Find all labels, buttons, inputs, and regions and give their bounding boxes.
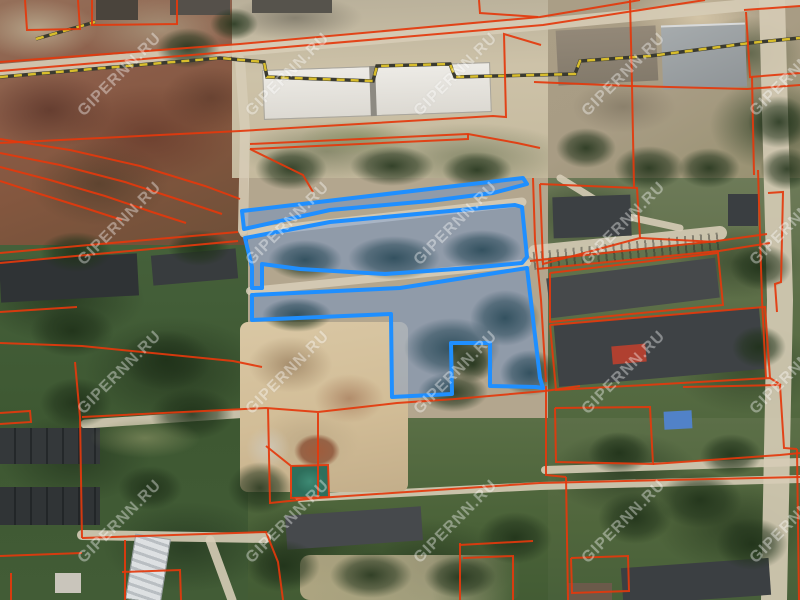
road — [0, 0, 800, 70]
building — [125, 534, 171, 600]
cadastral-parcel-line — [25, 0, 80, 30]
cadastral-parcel-line — [0, 307, 77, 312]
building — [661, 23, 747, 90]
gas-pipeline-underlay — [0, 38, 800, 81]
watermark-text: GIPERNN.RU — [747, 328, 800, 419]
watermark-text: GIPERNN.RU — [579, 328, 670, 419]
road — [545, 462, 800, 470]
cadastral-parcel-line — [683, 385, 797, 449]
watermark-text: GIPERNN.RU — [747, 477, 800, 568]
cadastral-parcel-line — [122, 570, 181, 600]
watermark-text: GIPERNN.RU — [747, 30, 800, 121]
cadastral-parcel-line — [82, 386, 580, 417]
cadastral-parcel-line — [459, 541, 533, 545]
building — [96, 0, 138, 20]
building — [252, 0, 332, 13]
watermark-text: GIPERNN.RU — [75, 328, 166, 419]
terrain-right-mid — [548, 178, 800, 418]
cadastral-parcel-line — [546, 386, 566, 477]
cadastral-parcel-line — [744, 6, 800, 10]
cadastral-parcel-line — [0, 167, 186, 223]
selected-parcel-polygon[interactable] — [252, 268, 543, 397]
building — [611, 344, 646, 365]
road — [772, 0, 780, 600]
cadastral-parcel-line — [797, 449, 799, 600]
watermark-text: GIPERNN.RU — [75, 30, 166, 121]
cadastral-parcel-line — [550, 307, 770, 390]
building — [55, 573, 81, 593]
terrain-field-brown — [0, 0, 248, 245]
cadastral-parcel-line — [0, 153, 222, 214]
road — [240, 60, 245, 230]
building — [0, 428, 100, 464]
building — [170, 0, 230, 15]
watermark-text: GIPERNN.RU — [411, 30, 502, 121]
cadastral-parcel-line — [0, 181, 122, 220]
watermark-text: GIPERNN.RU — [579, 30, 670, 121]
building — [556, 25, 659, 85]
building — [151, 248, 238, 285]
watermark-text: GIPERNN.RU — [243, 328, 334, 419]
rubble-pile — [294, 434, 340, 468]
rubble-pile — [246, 426, 290, 470]
building — [262, 62, 492, 120]
gas-pipeline-line — [36, 22, 95, 39]
cadastral-parcel-line — [82, 532, 283, 600]
cadastral-parcel-line — [0, 343, 262, 367]
cadastral-parcel-line — [250, 134, 540, 148]
watermark-text: GIPERNN.RU — [411, 477, 502, 568]
cadastral-parcel-line — [0, 241, 238, 263]
watermark-text: GIPERNN.RU — [243, 30, 334, 121]
building — [621, 558, 771, 600]
cadastral-parcel-line — [630, 0, 634, 187]
building — [369, 66, 377, 116]
cadastral-parcel-line — [0, 0, 705, 71]
cadastral-parcel-line — [768, 192, 783, 312]
cadastral-parcel-line — [752, 77, 754, 175]
building — [554, 307, 765, 387]
building — [285, 506, 423, 549]
building — [728, 194, 758, 226]
cadastral-parcel-line — [555, 407, 653, 464]
terrain-sand-bottom — [300, 555, 520, 600]
cadastral-parcel-line — [0, 139, 240, 199]
watermark-text: GIPERNN.RU — [75, 477, 166, 568]
cadastral-overlay — [0, 0, 800, 600]
building — [0, 253, 139, 302]
terrain-top-right — [548, 0, 800, 178]
terrain-top-center — [232, 0, 548, 178]
cadastral-parcel-line — [0, 411, 31, 424]
cadastral-parcel-line — [758, 170, 766, 378]
cadastral-parcel-line — [463, 556, 513, 600]
road — [82, 535, 266, 538]
cadastral-parcel-line — [0, 553, 82, 556]
cadastral-parcel-line — [770, 378, 781, 385]
building — [546, 258, 720, 318]
pond — [292, 466, 328, 497]
road — [268, 410, 800, 498]
terrain-bottom-left — [0, 245, 248, 600]
cadastral-parcel-line — [75, 362, 82, 538]
building — [0, 487, 100, 525]
building — [568, 583, 612, 600]
gas-pipeline-underlay — [36, 22, 95, 39]
cadastral-parcel-line — [571, 556, 629, 593]
watermark-text: GIPERNN.RU — [579, 477, 670, 568]
cadastral-parcel-line — [268, 408, 800, 503]
tarp-shed — [664, 410, 693, 429]
cadastral-parcel-line — [250, 149, 313, 192]
cadastral-parcel-line — [250, 134, 468, 149]
railway-track — [533, 232, 724, 270]
cadastral-parcel-line — [92, 0, 177, 25]
cadastral-parcel-line — [479, 0, 538, 17]
cadastral-parcel-line — [0, 232, 238, 253]
gas-pipeline-line — [0, 38, 800, 81]
terrain-bottom-center — [248, 418, 548, 600]
terrain-bottom-right — [548, 418, 800, 600]
cadastral-parcel-line — [0, 0, 640, 62]
cadastral-parcel-line — [534, 82, 800, 89]
road — [210, 540, 232, 600]
building — [552, 195, 631, 239]
road — [560, 178, 680, 228]
watermark-text: GIPERNN.RU — [747, 179, 800, 270]
cadastral-parcel-line — [653, 453, 800, 464]
cadastral-parcel-line — [746, 12, 800, 77]
road — [85, 412, 265, 424]
watermark-text: GIPERNN.RU — [75, 179, 166, 270]
terrain-top-strip — [0, 0, 800, 30]
cadastral-parcel-line — [0, 34, 541, 143]
cadastral-parcel-line — [566, 477, 568, 600]
map-canvas[interactable]: GIPERNN.RUGIPERNN.RUGIPERNN.RUGIPERNN.RU… — [0, 0, 800, 600]
